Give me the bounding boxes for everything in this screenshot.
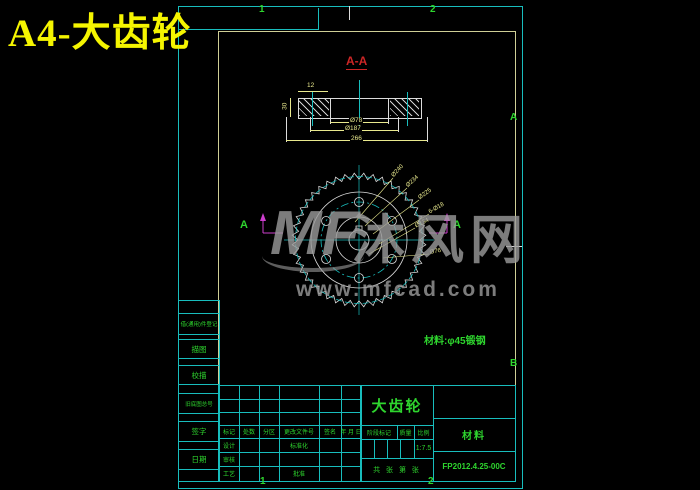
title-block-right-section: 大齿轮 阶段标记 质量 比例 1:7.5 共 张 第 张 材料 FP2012.4… (360, 385, 516, 482)
ext-line-6 (427, 117, 428, 142)
tb-row-check: 审核 (219, 452, 239, 466)
scale-value: 1:7.5 (414, 439, 433, 458)
section-hole-centerline-right (407, 92, 408, 126)
svg-text:Ø234: Ø234 (405, 174, 420, 189)
tb-mass-label: 质量 (397, 425, 414, 439)
binding-row-check-tracing: 校描 (179, 365, 219, 385)
title-block-left-grid: 标记 处数 分区 更改文件号 签名 年 月 日 设计 标准化 审核 工艺 批准 (218, 385, 362, 482)
watermark-name: 沐风网 (352, 198, 529, 274)
binding-row-signature: 签字 (179, 421, 219, 442)
tb-stage-label: 阶段标记 (361, 425, 397, 439)
dim-text-overall: 266 (350, 136, 363, 143)
tb-header-zone: 分区 (259, 425, 279, 438)
ext-line-4 (398, 117, 399, 132)
sheet-count-row: 共 张 第 张 (361, 458, 433, 481)
section-hatch-right (390, 99, 419, 116)
zone-letter-a: A (510, 112, 517, 123)
section-divider-left (330, 98, 331, 117)
border-step-line-h (178, 29, 318, 30)
zone-letter-b: B (510, 358, 517, 369)
binding-row-register: 借(通用)件登记 (179, 313, 219, 335)
border-step-line-v (318, 8, 319, 30)
tb-row-design: 设计 (219, 438, 239, 452)
tb-header-count: 处数 (239, 425, 259, 438)
tb-header-date: 年 月 日 (341, 425, 361, 438)
section-hole-centerline-left (312, 92, 313, 126)
zone-number-bottom-2: 2 (428, 476, 434, 487)
ext-line-2 (388, 117, 389, 124)
binding-row-tracing: 描图 (179, 339, 219, 359)
zone-number-top-2: 2 (430, 4, 436, 15)
part-name: 大齿轮 (361, 386, 433, 425)
tb-header-doc-no: 更改文件号 (279, 425, 319, 438)
tb-label-approve: 批准 (279, 466, 319, 481)
zone-number-bottom-1: 1 (260, 476, 266, 487)
material-note: 材料:φ45锻钢 (424, 332, 486, 347)
dim-text-left: 30 (282, 102, 289, 111)
cut-letter-left: A (240, 219, 248, 231)
dim-line-top (298, 91, 328, 92)
tb-row-process: 工艺 (219, 466, 239, 481)
zone-number-top-1: 1 (259, 4, 265, 15)
dim-text-inner: Ø78 (349, 118, 363, 125)
dim-text-top: 12 (306, 83, 315, 90)
watermark-swoosh (262, 240, 364, 272)
tb-label-standardization: 标准化 (279, 438, 319, 452)
watermark-url: www.mfcad.com (296, 278, 500, 302)
svg-text:Ø240: Ø240 (391, 163, 406, 178)
zone-tick-top (349, 6, 350, 20)
binding-row-date: 日期 (179, 449, 219, 470)
tb-header-sign: 签名 (319, 425, 341, 438)
drawing-number: FP2012.4.25-00C (433, 451, 515, 481)
ext-line-5 (286, 117, 287, 142)
binding-strip-table: 借(通用)件登记 描图 校描 旧底图总号 签字 日期 (178, 300, 220, 482)
dim-line-left (290, 98, 291, 117)
section-divider-right (388, 98, 389, 117)
binding-row-old-drawing-no: 旧底图总号 (179, 393, 219, 414)
section-hatch-left (299, 99, 329, 116)
material-cell: 材料 (433, 418, 515, 451)
dim-text-mid: Ø187 (344, 126, 362, 133)
tb-header-mark: 标记 (219, 425, 239, 438)
cad-preview-canvas: A4-大齿轮 1 2 1 2 A B A-A 12 30 Ø78 Ø187 26… (0, 0, 700, 490)
tb-scale-label: 比例 (414, 425, 433, 439)
page-title: A4-大齿轮 (8, 2, 192, 58)
section-label: A-A (346, 54, 367, 70)
